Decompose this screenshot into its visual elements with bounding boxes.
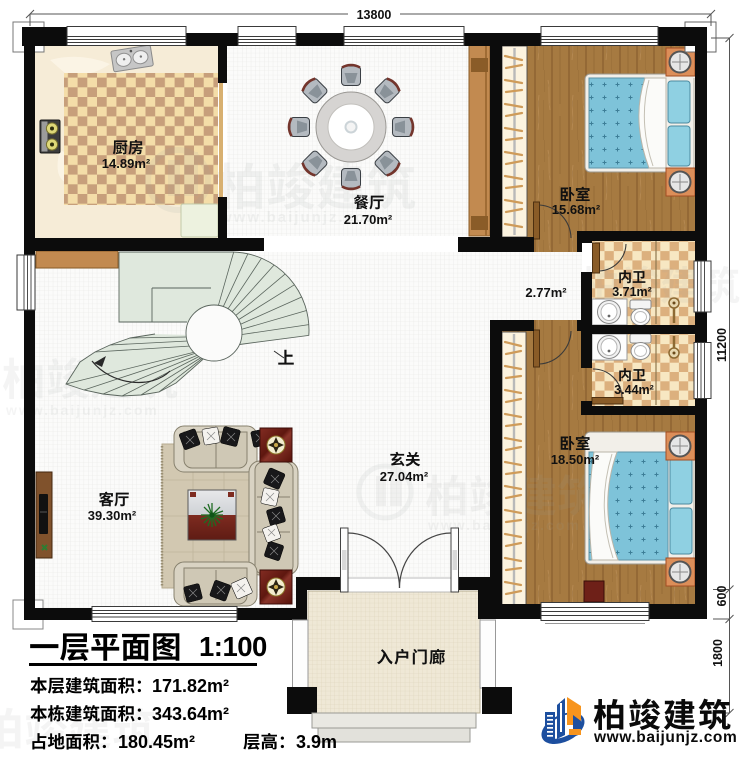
svg-text:14.89m²: 14.89m² bbox=[102, 156, 151, 171]
svg-text:180.45m²: 180.45m² bbox=[118, 732, 195, 752]
svg-text:www.baijunjz.com: www.baijunjz.com bbox=[593, 729, 737, 746]
svg-text:1800: 1800 bbox=[711, 639, 725, 667]
svg-text:1:100: 1:100 bbox=[199, 631, 267, 662]
svg-text:3.71m²: 3.71m² bbox=[612, 285, 652, 299]
svg-text:39.30m²: 39.30m² bbox=[88, 508, 137, 523]
svg-text:18.50m²: 18.50m² bbox=[551, 452, 600, 467]
svg-text:27.04m²: 27.04m² bbox=[380, 469, 429, 484]
svg-text:343.64m²: 343.64m² bbox=[152, 704, 229, 724]
svg-text:2.77m²: 2.77m² bbox=[525, 285, 567, 300]
svg-text:3.9m: 3.9m bbox=[296, 732, 337, 752]
svg-text:11200: 11200 bbox=[715, 328, 729, 362]
svg-text:21.70m²: 21.70m² bbox=[344, 212, 393, 227]
svg-text:171.82m²: 171.82m² bbox=[152, 676, 229, 696]
svg-text:3.44m²: 3.44m² bbox=[614, 383, 654, 397]
svg-text:600: 600 bbox=[715, 586, 729, 607]
svg-text:15.68m²: 15.68m² bbox=[552, 202, 601, 217]
svg-text:13800: 13800 bbox=[357, 8, 392, 22]
